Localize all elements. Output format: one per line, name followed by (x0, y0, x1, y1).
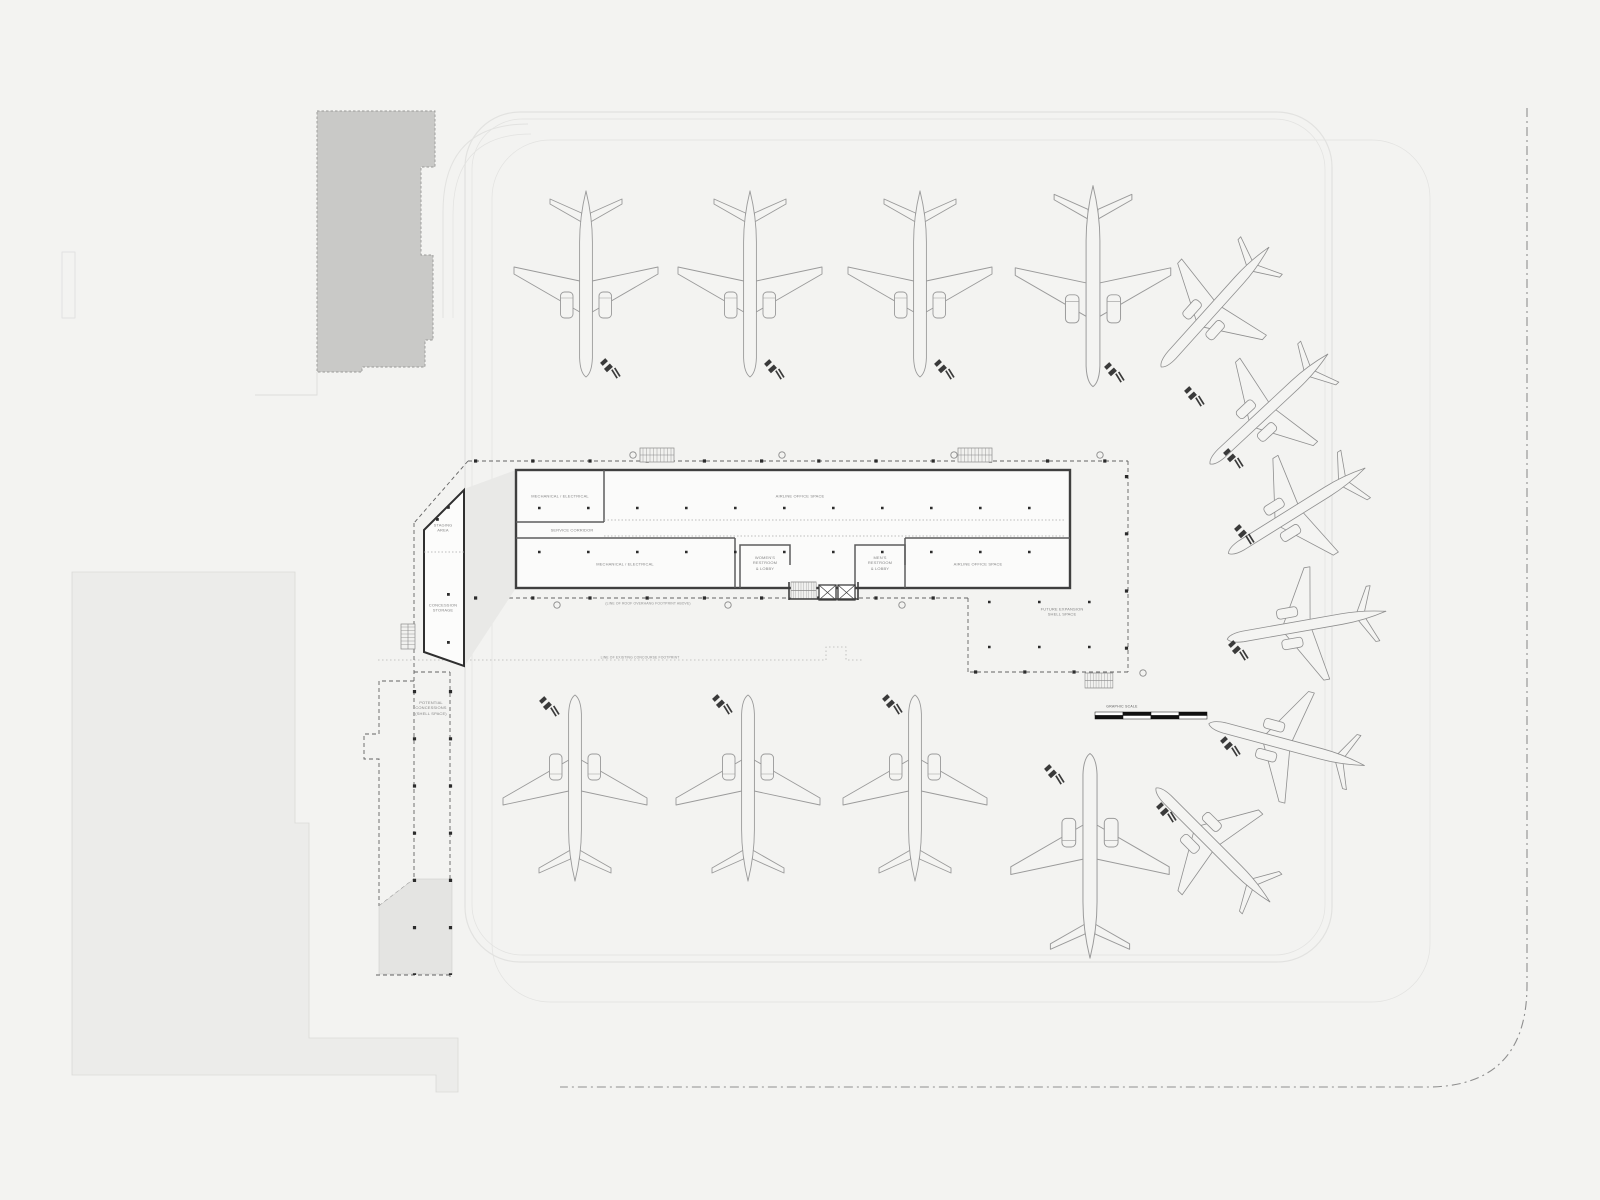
room-label-service-corridor: SERVICE CORRIDOR (551, 527, 594, 532)
concourse-building (516, 470, 1070, 600)
baggage-tug-icon (882, 694, 903, 714)
aircraft-widebody-south-4 (1011, 754, 1169, 959)
room-label-mens-restroom: MEN'S RESTROOM & LOBBY (868, 555, 892, 571)
baggage-tug-icon (1220, 736, 1241, 756)
baggage-tug-icon (539, 696, 560, 716)
stair-core (791, 582, 816, 599)
room-label-womens-restroom: WOMEN'S RESTROOM & LOBBY (753, 555, 777, 571)
baggage-tug-icon (934, 359, 955, 379)
elevator-1 (819, 585, 836, 600)
aircraft-narrowbody-east-1 (1119, 209, 1311, 405)
storage-bar (424, 490, 464, 666)
stair-southeast (1085, 673, 1113, 688)
baggage-tug-icon (1104, 362, 1125, 382)
existing-building (317, 111, 435, 372)
stair-west (401, 624, 415, 649)
room-label-staging-area: STAGING AREA (434, 523, 453, 534)
baggage-tug-icon (1223, 448, 1244, 468)
note-existing-concourse: LINE OF EXISTING CONCOURSE FOOTPRINT (601, 656, 680, 661)
room-label-concession-storage: CONCESSION STORAGE (429, 603, 457, 614)
baggage-tug-icon (764, 359, 785, 379)
ground-equipment-layer (539, 358, 1255, 822)
room-label-mechanical-electrical-upper: MECHANICAL / ELECTRICAL (531, 493, 589, 498)
aircraft-widebody-north-4 (1015, 186, 1171, 387)
graphic-scale-bar (1095, 712, 1207, 719)
aircraft-narrowbody-east-4 (1217, 555, 1395, 695)
curb-island (62, 252, 75, 318)
aircraft-narrowbody-east-2 (1171, 312, 1366, 505)
aircraft-widebody-south-3 (843, 695, 987, 881)
baggage-tug-icon (1184, 386, 1205, 406)
baggage-tug-icon (1044, 764, 1065, 784)
aircraft-widebody-north-1 (514, 191, 658, 377)
note-roof-overhang: (LINE OF ROOF OVERHANG FOOTPRINT ABOVE) (605, 602, 690, 607)
aircraft-widebody-south-2 (676, 695, 820, 881)
canopy-wedge (464, 470, 516, 667)
aircraft-narrowbody-east-5 (1194, 669, 1379, 821)
stair-north-2 (958, 448, 992, 462)
graphic-scale-label: GRAPHIC SCALE (1106, 705, 1137, 710)
room-label-potential-concessions: POTENTIAL CONCESSIONS (SHELL SPACE) (415, 700, 447, 716)
room-label-airline-office-lower: AIRLINE OFFICE SPACE (954, 561, 1003, 566)
aircraft-widebody-north-2 (678, 191, 822, 377)
room-label-airline-office-upper: AIRLINE OFFICE SPACE (776, 493, 825, 498)
plan-drawing (0, 0, 1600, 1200)
baggage-tug-icon (712, 694, 733, 714)
baggage-tug-icon (1228, 640, 1249, 660)
stair-north-1 (640, 448, 674, 462)
room-label-future-expansion: FUTURE EXPANSION SHELL SPACE (1041, 607, 1084, 618)
room-label-mechanical-electrical-lower: MECHANICAL / ELECTRICAL (596, 561, 654, 566)
elevator-2 (838, 585, 855, 600)
service-road-edge (255, 372, 317, 395)
aircraft-widebody-north-3 (848, 191, 992, 377)
aircraft-widebody-south-1 (503, 695, 647, 881)
site-plan: MECHANICAL / ELECTRICAL AIRLINE OFFICE S… (0, 0, 1600, 1200)
baggage-tug-icon (600, 358, 621, 378)
